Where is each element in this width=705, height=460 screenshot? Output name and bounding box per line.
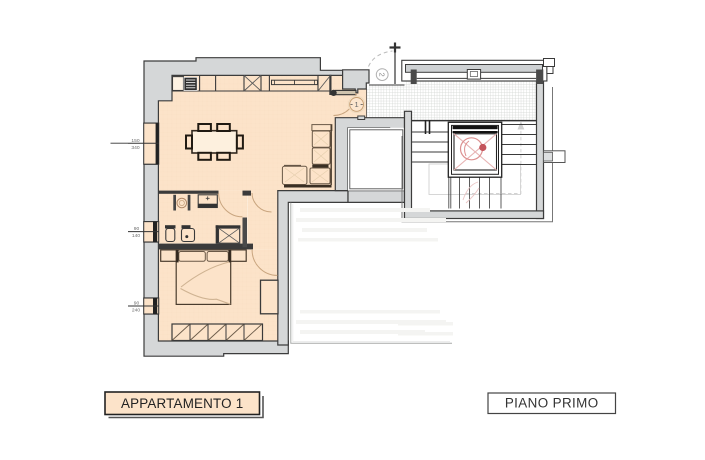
svg-text:150: 150 — [131, 138, 139, 144]
svg-text:APPARTAMENTO 1: APPARTAMENTO 1 — [121, 396, 243, 411]
svg-text:140: 140 — [132, 233, 140, 239]
svg-text:90: 90 — [134, 301, 140, 307]
svg-text:90: 90 — [134, 226, 140, 232]
svg-text:240: 240 — [132, 308, 140, 314]
svg-text:340: 340 — [131, 145, 139, 151]
svg-text:2: 2 — [378, 73, 387, 77]
svg-text:PIANO PRIMO: PIANO PRIMO — [505, 396, 599, 411]
svg-text:1: 1 — [355, 100, 359, 109]
